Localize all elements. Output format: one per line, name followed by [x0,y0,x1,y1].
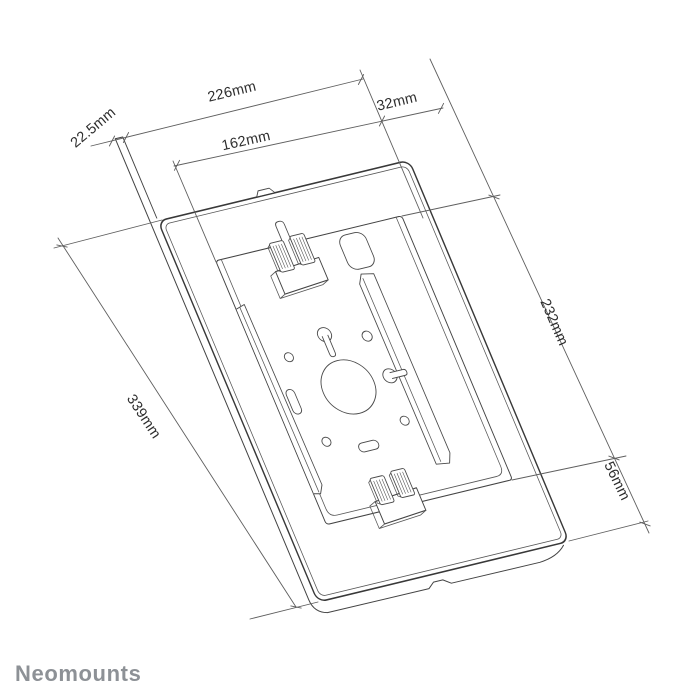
tablet-enclosure-drawing: 226mm 22.5mm 162mm 32mm 232mm 56mm 339mm [0,0,700,700]
technical-drawing-page: 226mm 22.5mm 162mm 32mm 232mm 56mm 339mm… [0,0,700,700]
dim-label-56mm: 56mm [600,459,632,503]
enclosure-object [115,76,574,616]
dim-label-32mm: 32mm [375,90,419,115]
dim-label-339mm: 339mm [123,392,164,442]
dim-label-226mm: 226mm [206,79,258,106]
neomounts-logo: Neomounts [15,661,141,687]
dim-label-232mm: 232mm [536,297,570,349]
dim-label-22-5mm: 22.5mm [68,105,119,152]
